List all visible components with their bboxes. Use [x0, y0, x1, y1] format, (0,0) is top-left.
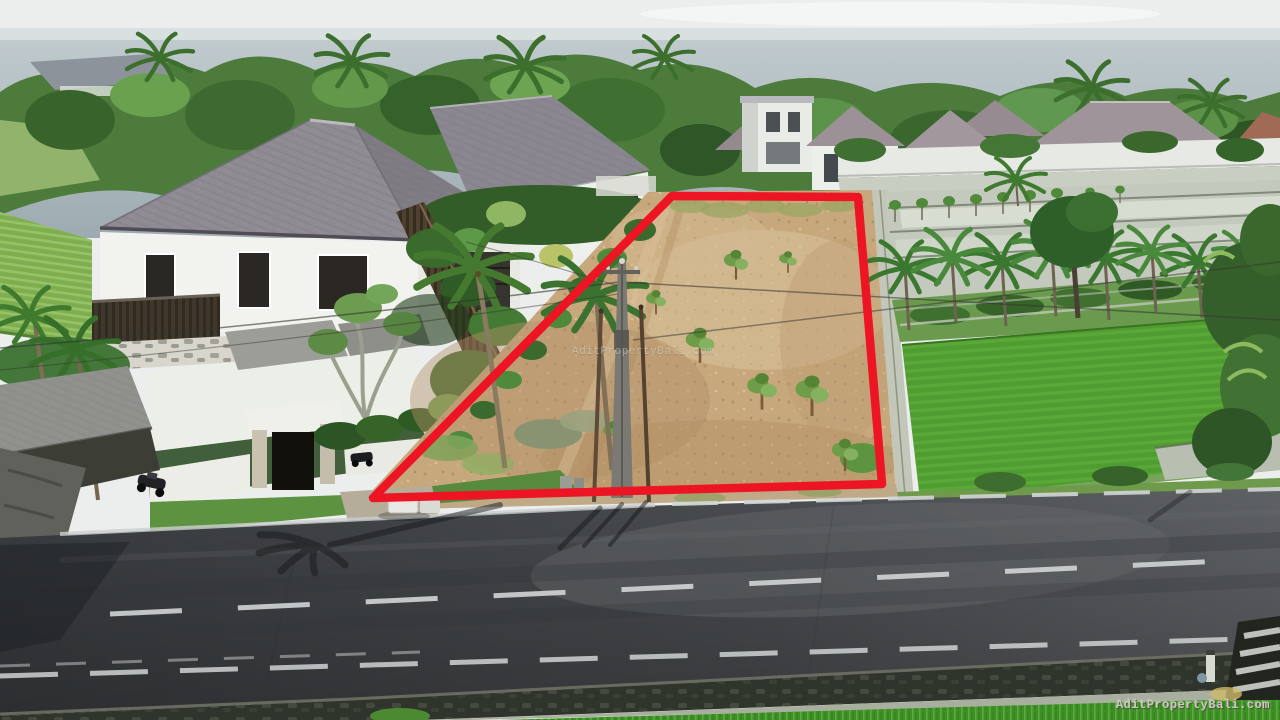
rice-paddies	[869, 158, 1280, 505]
aerial-photo: AditPropertyBali.com AditPropertyBali.co…	[0, 0, 1280, 720]
photo-scene	[0, 0, 1280, 720]
